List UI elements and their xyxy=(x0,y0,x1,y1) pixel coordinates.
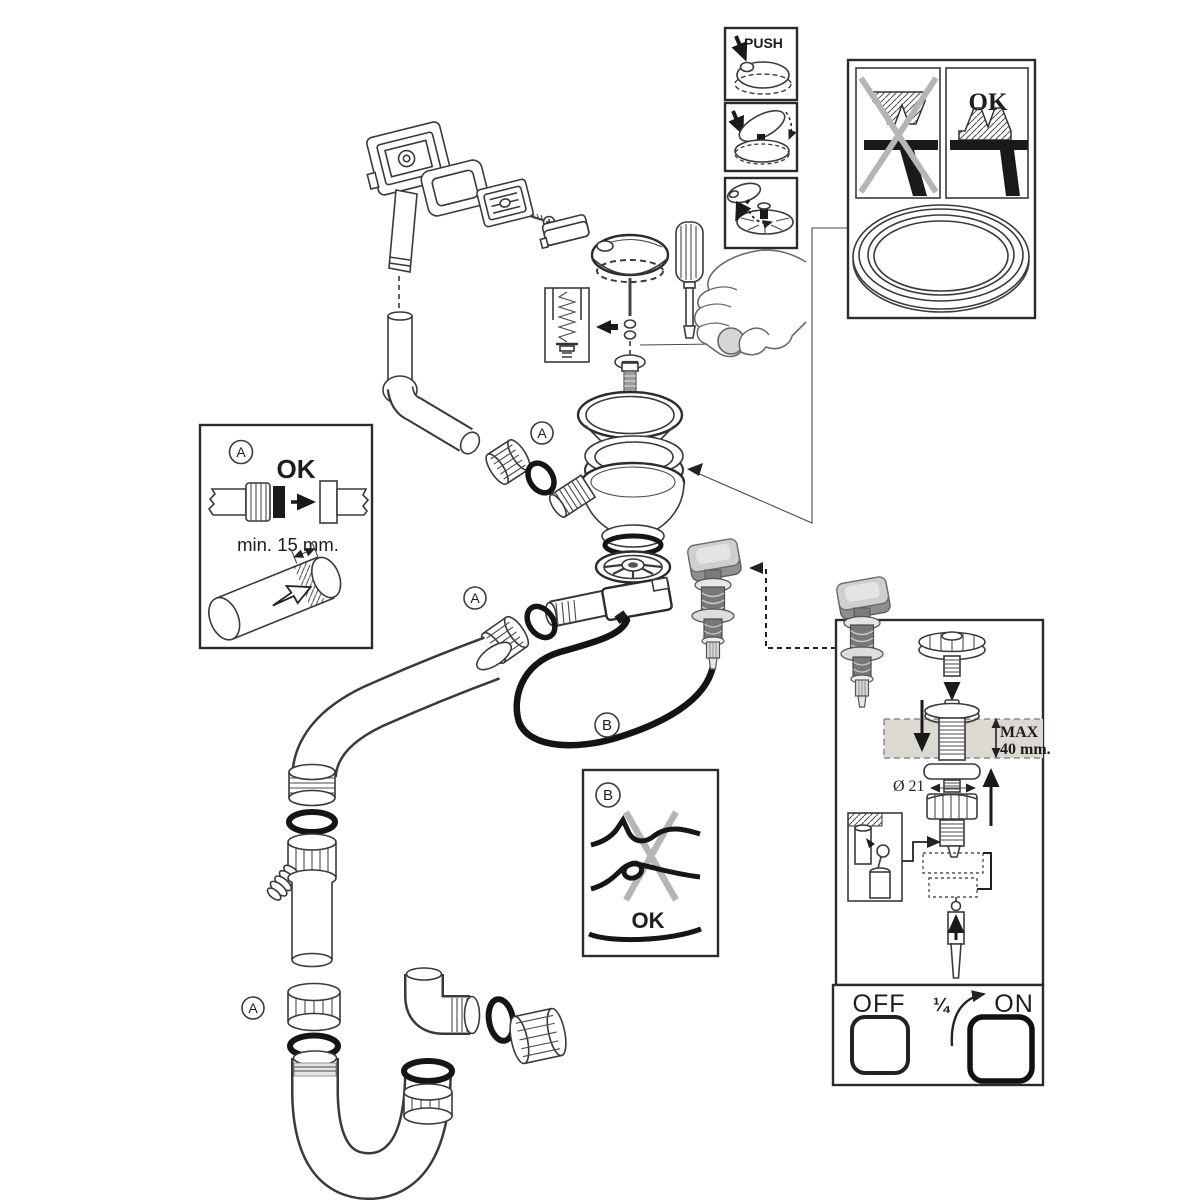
coupling-nut-outlet xyxy=(507,1007,570,1065)
svg-text:B: B xyxy=(603,787,613,804)
hand-with-coin xyxy=(695,250,806,356)
waste-body xyxy=(547,463,684,554)
outlet-body xyxy=(544,578,672,627)
actuator-install-panel: MAX 40 mm. Ø 21 xyxy=(836,576,1051,985)
svg-text:A: A xyxy=(537,425,547,441)
push-step-1: PUSH xyxy=(725,28,797,100)
diagram-page: A B A xyxy=(0,0,1200,1200)
seal-comparison-panel: OK xyxy=(848,60,1035,318)
cable-actuator xyxy=(687,538,742,669)
ok-label: OK xyxy=(277,454,316,484)
overflow-pipe-lower xyxy=(388,312,412,380)
callout-b-box: B xyxy=(596,783,620,807)
left-arrow-icon xyxy=(596,320,611,334)
main-elbow-pipe xyxy=(314,637,516,776)
svg-text:A: A xyxy=(470,590,480,606)
stem-washer-2 xyxy=(625,331,636,339)
diameter-label: Ø 21 xyxy=(893,778,925,795)
siphon-pipework: A xyxy=(242,587,569,1176)
u-bend-trap xyxy=(294,1051,453,1176)
fitting-instruction-box: A OK min. 15 mm. xyxy=(197,425,372,648)
push-step-3 xyxy=(725,178,797,248)
coupling-nut-trap xyxy=(288,984,340,1031)
callout-a-box: A xyxy=(230,441,253,464)
pop-up-plug-cap xyxy=(592,235,668,282)
seal-wrong-box xyxy=(856,68,940,198)
svg-text:B: B xyxy=(602,717,612,734)
push-step-2 xyxy=(725,103,797,171)
max-depth-label-1: MAX xyxy=(1000,724,1039,741)
overflow-elbow-pipe xyxy=(400,386,483,457)
o-ring-tee xyxy=(289,812,335,832)
off-label: OFF xyxy=(853,990,906,1018)
push-sequence: PUSH xyxy=(725,28,797,248)
upper-coupling: A xyxy=(482,422,559,498)
push-label: PUSH xyxy=(744,35,783,51)
min-insertion-label: min. 15 mm. xyxy=(237,534,339,555)
coupling-nut-upper xyxy=(482,437,534,488)
ok-label: OK xyxy=(632,908,665,933)
outlet-elbow xyxy=(407,968,570,1065)
callout-a-3: A xyxy=(242,997,264,1019)
callout-b-1: B xyxy=(595,713,619,737)
svg-text:A: A xyxy=(236,444,246,460)
stem-washer-1 xyxy=(625,320,636,328)
valve-onoff-box: OFF ¼ ON xyxy=(833,985,1043,1085)
callout-a-1: A xyxy=(531,422,553,444)
trap-inlet-coupling: A xyxy=(242,984,340,1057)
drop-pipe xyxy=(292,882,332,967)
installation-diagram: A B A xyxy=(0,0,1200,1200)
max-depth-label-2: 40 mm. xyxy=(1000,741,1051,758)
spring-detail-inset xyxy=(545,288,618,362)
coupling-nut-trap-right xyxy=(404,1084,452,1124)
elbow-threaded-collar xyxy=(289,765,335,806)
on-label: ON xyxy=(994,990,1034,1018)
strainer-stack: A xyxy=(482,392,684,626)
actuator-dashed-link xyxy=(751,568,836,648)
quarter-turn-label: ¼ xyxy=(933,995,951,1016)
seal-correct-box: OK xyxy=(946,68,1028,198)
callout-a-2: A xyxy=(464,587,486,609)
svg-text:A: A xyxy=(248,1000,258,1016)
cable-instruction-box: B OK xyxy=(583,770,718,956)
